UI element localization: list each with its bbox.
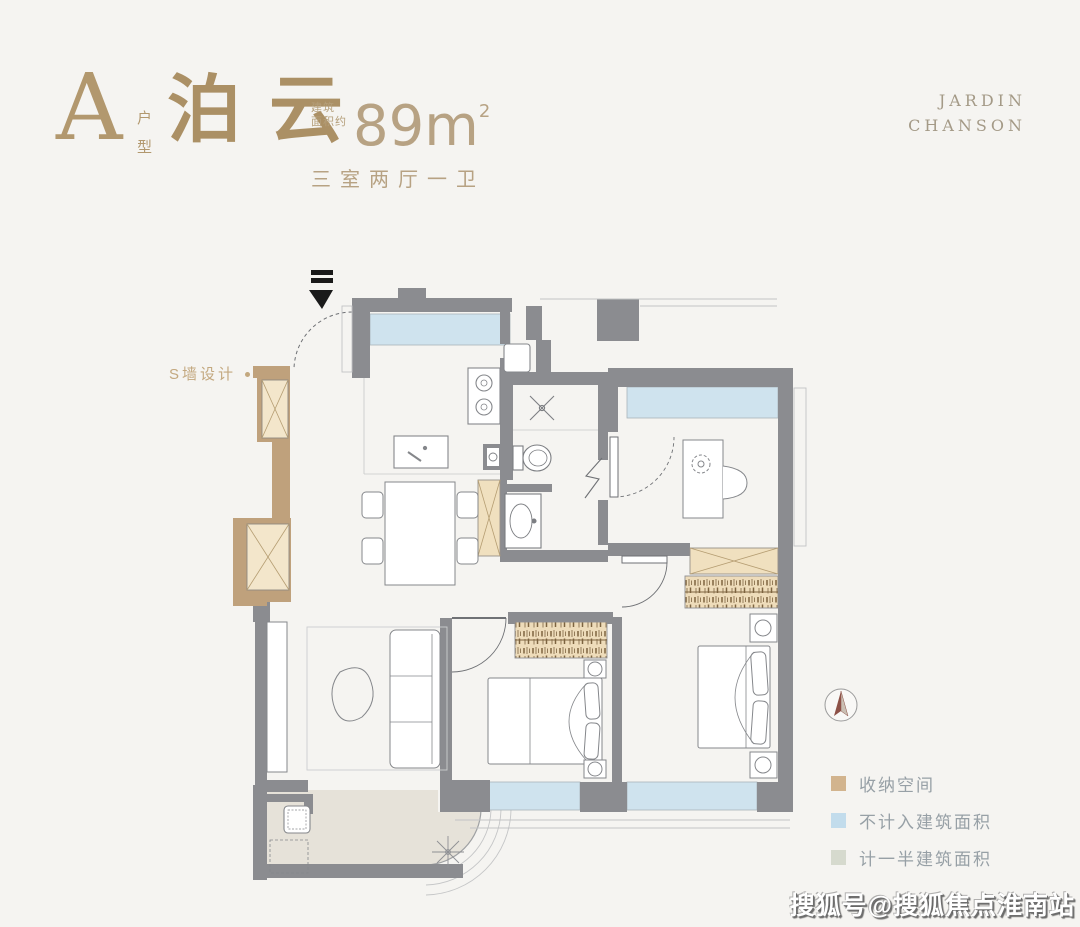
legend-swatch-storage [831,776,846,791]
nightstand [750,614,777,642]
kitchen-island-counter [394,436,448,468]
dining-table [385,482,455,585]
pillow [750,700,768,744]
kitchen-window [370,314,510,345]
legend-swatch-half-counted [831,850,846,865]
nightstand [584,660,606,678]
nightstand [750,752,777,778]
bedroom-2 [488,660,606,778]
legend-swatch-not-counted [831,813,846,828]
bedroom2-bay-window [488,782,580,810]
compass-icon [825,689,857,721]
s-wall-label: S墙设计 [169,363,250,384]
toilet-tank [513,446,523,470]
legend-item-storage: 收纳空间 [831,776,992,791]
pillow [750,652,768,696]
study-room [683,440,747,518]
watermark: 搜狐号@搜狐焦点淮南站 [790,886,1075,922]
nightstand [584,760,606,778]
sofa [390,630,440,768]
master-bay-window [627,782,757,810]
bathroom-folding-door [585,458,602,498]
entry-door-arc [294,312,352,370]
legend-label: 不计入建筑面积 [859,808,992,833]
dining-area [362,482,478,585]
desk [683,440,723,518]
legend-item-not-counted: 不计入建筑面积 [831,813,992,828]
legend-label: 收纳空间 [859,771,935,796]
pillow [584,723,600,760]
study-window [627,387,778,418]
dining-chair [362,538,383,564]
label-dot-icon [245,372,250,377]
living-room [267,622,447,772]
study-door-leaf [610,437,618,497]
dining-chair [457,492,478,518]
master-door-arc [622,562,667,607]
fridge-icon [504,344,530,372]
dining-chair [457,538,478,564]
shower-icon [530,396,554,420]
legend-item-half-counted: 计一半建筑面积 [831,850,992,865]
s-storage-wall [233,366,291,606]
coffee-table [332,668,373,721]
tv-cabinet [267,622,287,772]
study-door-arc [614,437,674,497]
entry-arrow-icon [309,270,333,309]
legend: 收纳空间 不计入建筑面积 计一半建筑面积 [831,776,992,887]
master-bedroom [698,614,777,778]
desk-chair [723,466,747,499]
pillow [584,683,600,720]
bedroom2-door-arc [452,618,506,672]
legend-label: 计一半建筑面积 [859,845,992,870]
stove-icon [468,368,500,424]
master-door-leaf [622,556,667,563]
dining-chair [362,492,383,518]
